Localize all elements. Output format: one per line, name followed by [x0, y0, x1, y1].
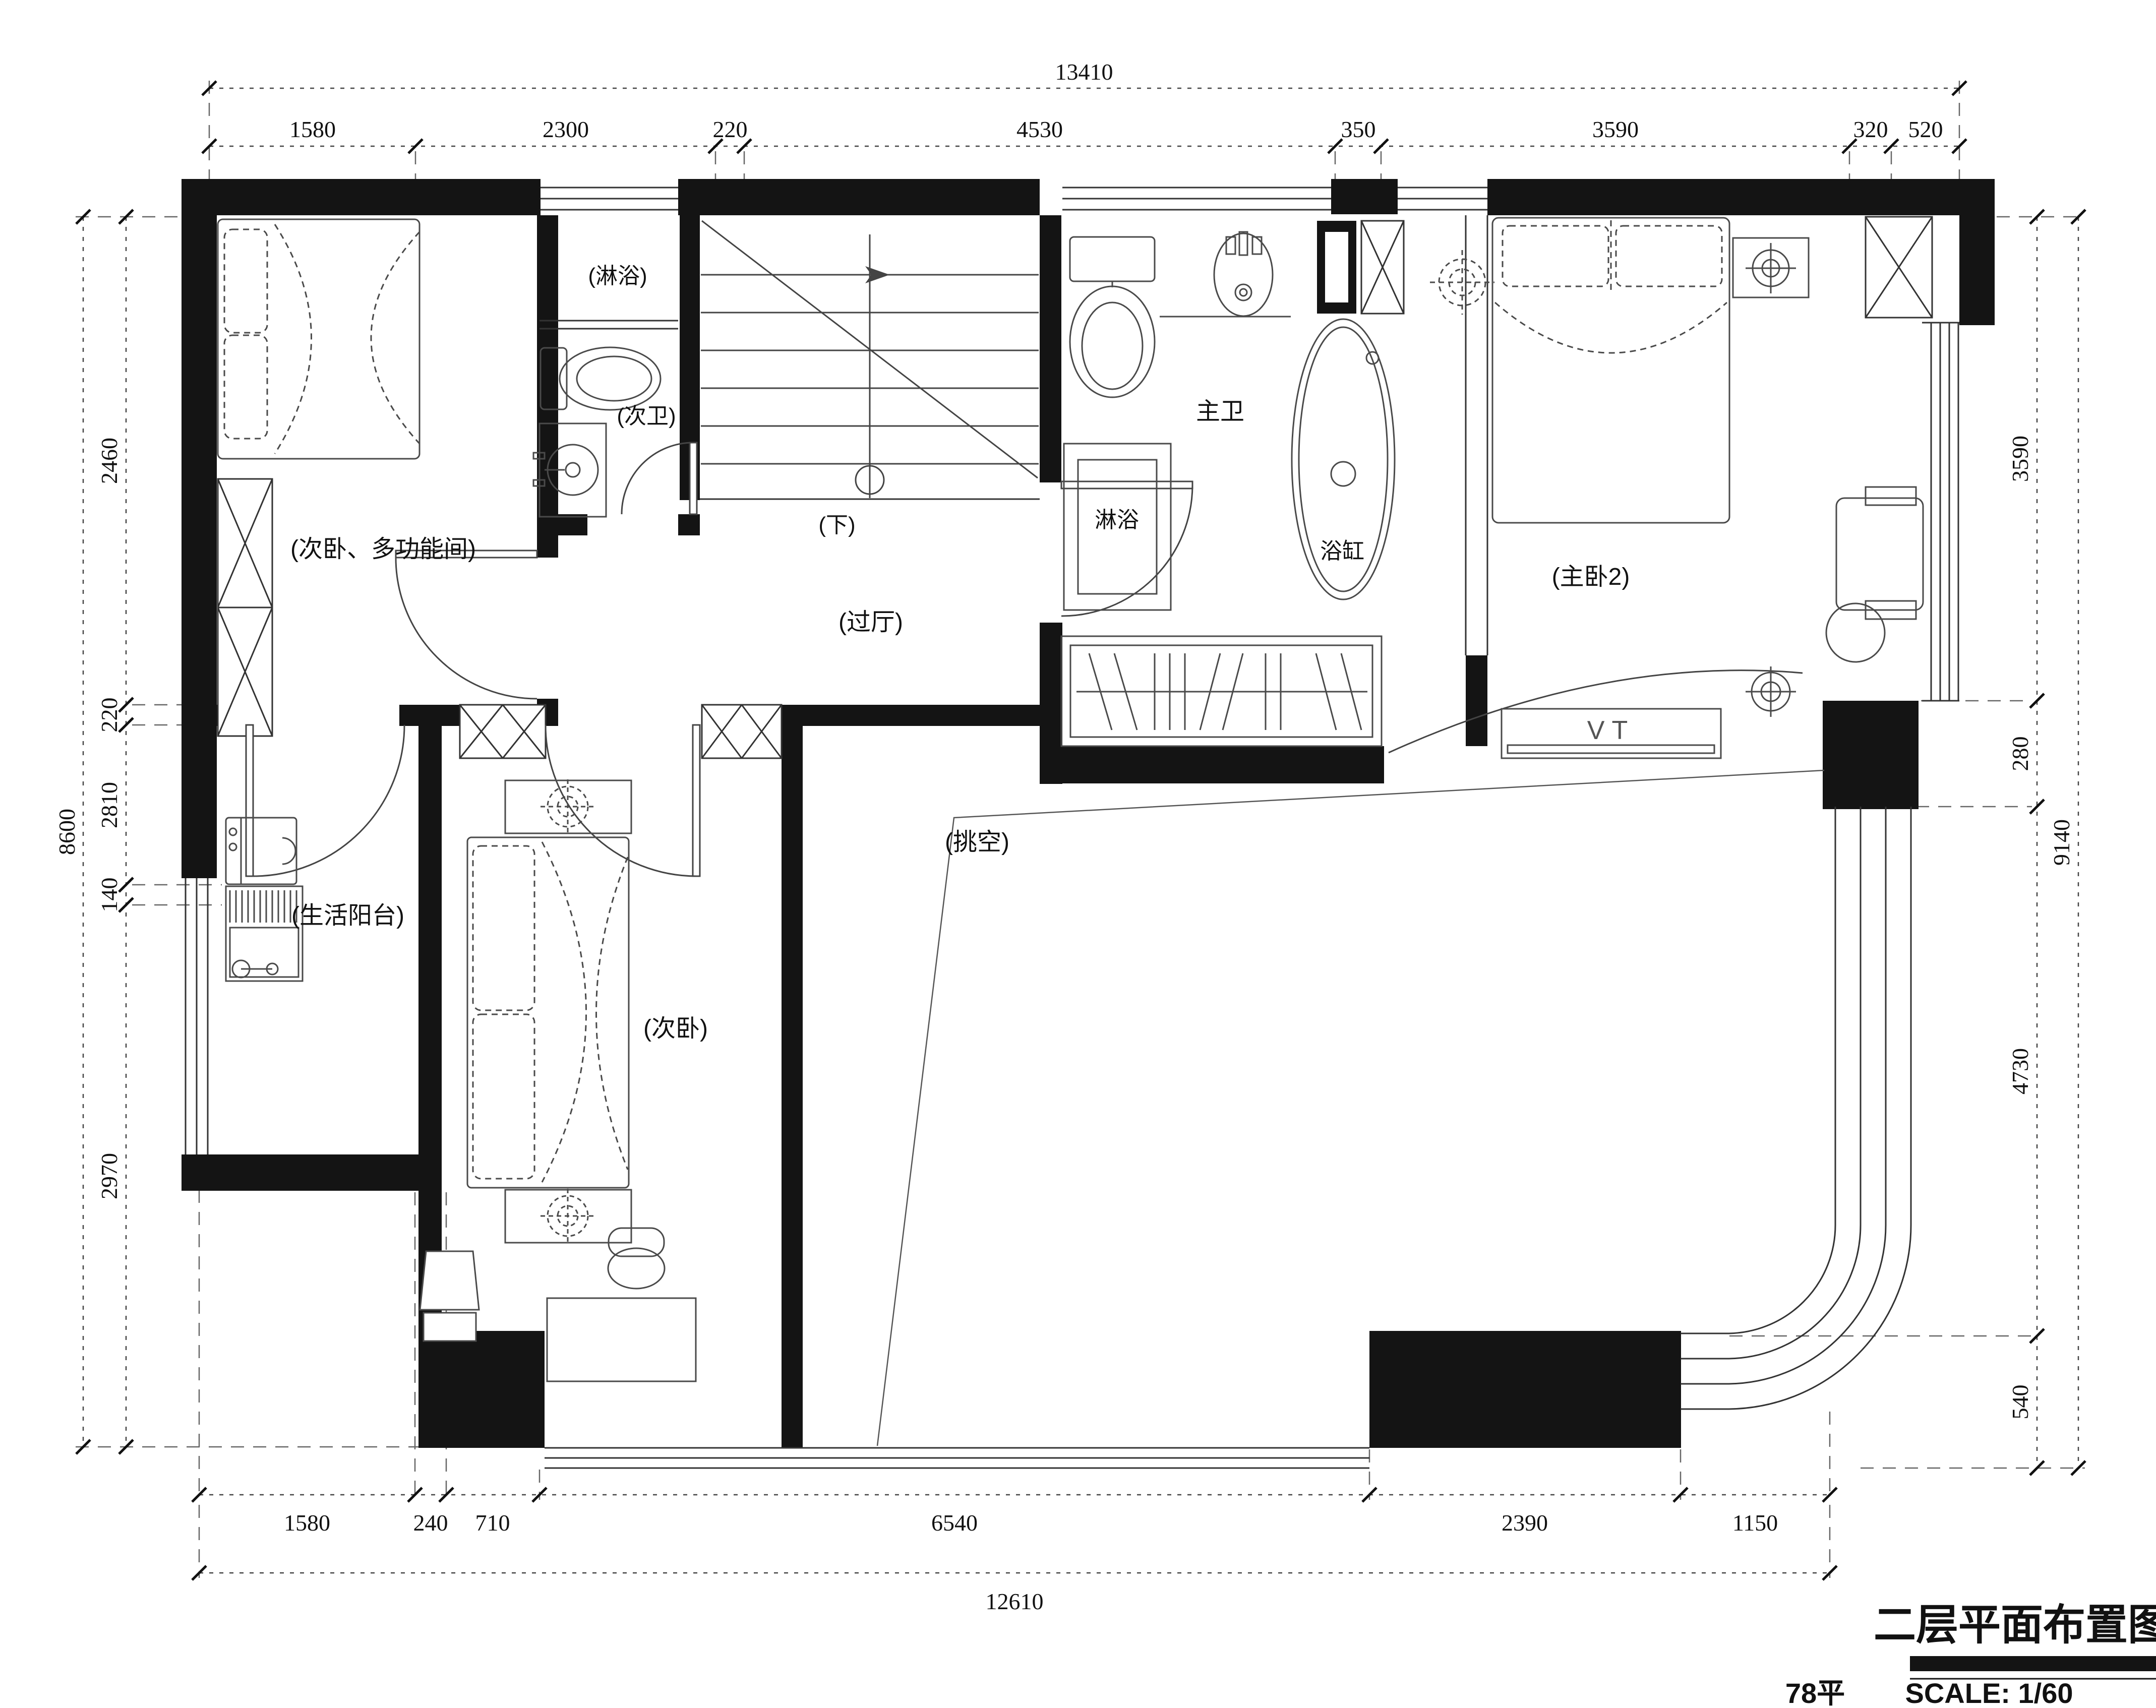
dim-top-seg: 2300	[543, 116, 589, 142]
bed-second-bedroom	[467, 837, 629, 1188]
window-top-shower	[541, 188, 678, 210]
room-label-shower-nook: (淋浴)	[588, 264, 647, 288]
dim-right-seg: 3590	[2007, 436, 2033, 482]
room-label-multi-bedroom: (次卧、多功能间)	[290, 536, 476, 563]
dim-bottom-total: 12610	[986, 1589, 1044, 1614]
dim-right-total: 9140	[2049, 819, 2074, 866]
wardrobe-second-bedroom	[460, 705, 782, 758]
wall-segment	[182, 1154, 420, 1191]
toilet-second-bath	[541, 347, 661, 410]
room-label-second-bath: (次卫)	[617, 404, 676, 429]
dim-top-seg: 220	[713, 116, 748, 142]
dim-top-seg: 520	[1908, 116, 1943, 142]
doors	[246, 443, 1803, 876]
dim-left-total: 8600	[54, 809, 80, 855]
dimension-text-left: 8600 2460 220 2810 140 2970	[54, 438, 122, 1199]
bay-window-curved	[1681, 807, 1911, 1409]
drawing-area: 78平	[1785, 1677, 1845, 1708]
dim-left-seg: 2460	[96, 438, 122, 484]
bed-master-bedroom	[1492, 218, 1729, 523]
shaft-core	[1325, 232, 1348, 302]
stool	[420, 1251, 479, 1341]
room-label-master-shower: 淋浴	[1095, 508, 1139, 532]
dim-top-seg: 4530	[1016, 116, 1063, 142]
dim-bottom-seg: 240	[413, 1510, 448, 1536]
wall-segment	[782, 725, 803, 1448]
dim-left-seg: 140	[96, 878, 122, 912]
floor-plan-canvas: 13410 1580 2300 220 4530 350 3590 320 52…	[0, 0, 2156, 1708]
dimension-text-top: 13410 1580 2300 220 4530 350 3590 320 52…	[289, 59, 1943, 142]
wall-segment	[1040, 746, 1384, 783]
dim-right-seg: 4730	[2007, 1048, 2033, 1094]
x-column-bedroom	[1866, 217, 1932, 318]
room-label-void: (挑空)	[945, 829, 1009, 856]
ceiling-symbol	[1746, 666, 1796, 717]
drawing-scale: SCALE: 1/60	[1905, 1677, 2073, 1708]
desk-chair	[608, 1228, 665, 1289]
laundry-sink	[226, 886, 303, 981]
dim-left-seg: 2970	[96, 1153, 122, 1199]
void-boundary	[877, 770, 1824, 1446]
window-top-bath-a	[1062, 188, 1331, 210]
room-labels: (次卧、多功能间) (淋浴) (次卫) (下) (过厅) 主卫 淋浴 浴缸 (主…	[290, 264, 1635, 1042]
window-top-bath-b	[1398, 188, 1487, 210]
bay-window-master	[1922, 323, 1959, 701]
door-second-bedroom	[546, 725, 700, 876]
dim-right-seg: 540	[2007, 1385, 2033, 1420]
wall-segment	[782, 705, 1041, 726]
dim-left-seg: 220	[96, 698, 122, 733]
room-label-stairs-down: (下)	[818, 513, 855, 537]
wall-segment	[1487, 179, 1960, 215]
dimension-text-bottom: 12610 1580 240 710 6540 2390 1150	[284, 1510, 1778, 1614]
dim-top-seg: 350	[1341, 116, 1376, 142]
floor-drain-icon	[1430, 250, 1494, 315]
lamp-second-bottom	[541, 1189, 595, 1243]
washing-machine	[226, 818, 296, 884]
dim-top-seg: 1580	[289, 116, 336, 142]
dim-top-seg: 3590	[1592, 116, 1639, 142]
side-table	[1826, 603, 1885, 662]
wall-mass	[1369, 1331, 1681, 1448]
desk	[547, 1298, 696, 1381]
dim-bottom-seg: 2390	[1502, 1510, 1548, 1536]
room-label-hallway: (过厅)	[839, 609, 903, 636]
x-column-bath	[1361, 221, 1404, 314]
room-label-master-bedroom: (主卧2)	[1552, 564, 1630, 590]
wall-segment	[1040, 215, 1061, 482]
lamp-second-top	[541, 779, 595, 834]
stair-direction-arrow	[821, 268, 887, 282]
dim-top-seg: 320	[1853, 116, 1888, 142]
wall-segment	[678, 514, 700, 535]
wall-segment	[678, 179, 1040, 215]
door-multi-bedroom	[396, 551, 537, 699]
lamp-master	[1746, 243, 1796, 293]
toilet-master-bath	[1070, 237, 1155, 397]
room-label-master-bath: 主卫	[1196, 398, 1244, 425]
room-label-balcony: (生活阳台)	[291, 902, 404, 929]
wall-pier	[1823, 701, 1919, 809]
armchair	[1836, 487, 1923, 619]
closet-hangers	[1061, 636, 1382, 746]
dim-bottom-seg: 1150	[1732, 1510, 1778, 1536]
wall-segment	[418, 725, 442, 1059]
room-label-bathtub: 浴缸	[1320, 539, 1364, 564]
dim-right-seg: 280	[2007, 737, 2033, 771]
wall-segment	[1331, 179, 1398, 214]
drawing-title: 二层平面布置图	[1874, 1601, 2156, 1649]
stairs	[701, 221, 1039, 498]
title-bar	[1910, 1656, 2156, 1671]
wall-segment	[1466, 655, 1487, 746]
wall-segment	[1959, 179, 1995, 325]
furniture	[218, 218, 1923, 1381]
dim-top-total: 13410	[1055, 59, 1113, 85]
bed-multi-bedroom	[218, 219, 420, 459]
dim-bottom-seg: 710	[475, 1510, 510, 1536]
sink-master-bath	[1160, 232, 1291, 317]
wall-segment	[399, 705, 460, 726]
dimension-text-right: 9140 3590 280 4730 540	[2007, 436, 2074, 1420]
title-block: 二层平面布置图 78平 SCALE: 1/60	[1785, 1601, 2156, 1708]
wall-segment	[418, 1331, 545, 1448]
wall-segment	[182, 215, 217, 878]
wardrobe-multi-bedroom	[218, 479, 272, 736]
window-balcony-left	[186, 878, 208, 1154]
dim-bottom-seg: 6540	[931, 1510, 978, 1536]
door-master-bath	[1061, 481, 1192, 616]
window-bottom-row	[545, 1448, 1369, 1468]
wall-segment	[182, 179, 541, 215]
dim-bottom-seg: 1580	[284, 1510, 330, 1536]
tv-label: VT	[1587, 716, 1635, 745]
dim-left-seg: 2810	[96, 782, 122, 828]
door-balcony	[246, 725, 404, 876]
room-label-second-bedroom: (次卧)	[643, 1015, 708, 1042]
